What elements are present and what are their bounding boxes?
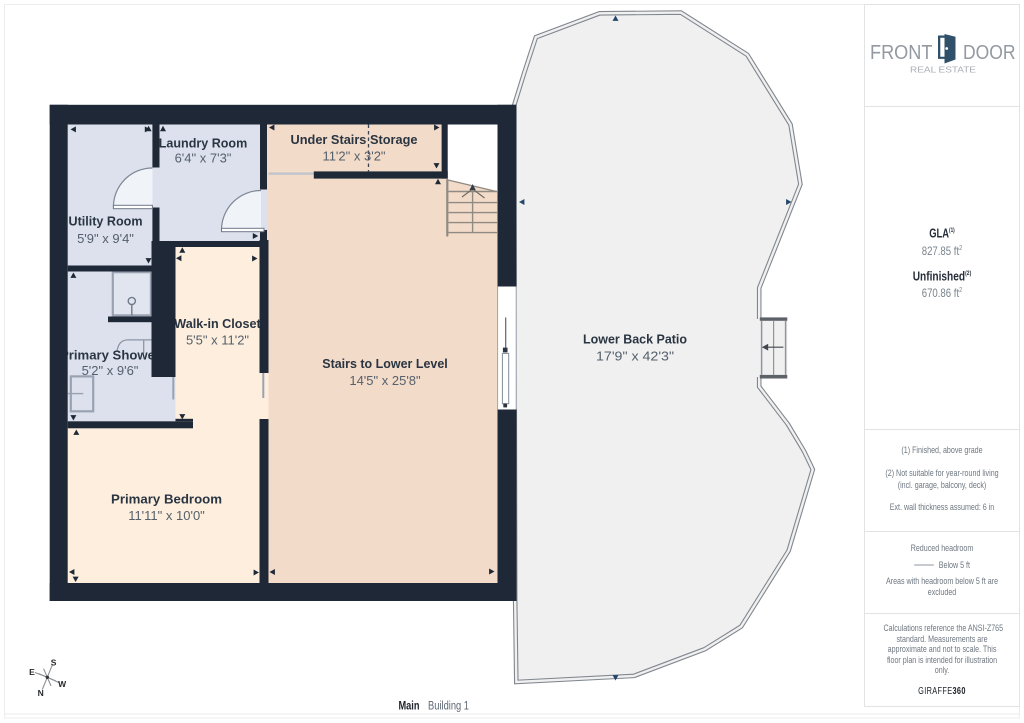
svg-text:Primary Shower: Primary Shower xyxy=(60,348,160,363)
svg-text:Utility Room: Utility Room xyxy=(69,214,143,229)
svg-text:Stairs to Lower Level: Stairs to Lower Level xyxy=(322,356,448,371)
svg-text:DOOR: DOOR xyxy=(963,42,1016,64)
svg-text:REAL ESTATE: REAL ESTATE xyxy=(910,65,976,75)
svg-text:Laundry Room: Laundry Room xyxy=(159,136,248,151)
svg-text:Main: Main xyxy=(399,700,420,712)
svg-text:14'5" x 25'8": 14'5" x 25'8" xyxy=(349,373,421,388)
svg-text:5'2" x 9'6": 5'2" x 9'6" xyxy=(82,363,139,378)
svg-text:W: W xyxy=(58,679,67,689)
svg-text:5'9" x 9'4": 5'9" x 9'4" xyxy=(77,231,134,246)
svg-text:Walk-in Closet: Walk-in Closet xyxy=(174,316,261,331)
svg-text:Lower Back Patio: Lower Back Patio xyxy=(583,332,687,347)
svg-text:17'9" x 42'3": 17'9" x 42'3" xyxy=(596,349,674,364)
svg-text:N: N xyxy=(38,688,44,698)
svg-text:5'5" x 11'2": 5'5" x 11'2" xyxy=(186,333,249,348)
svg-text:Under Stairs Storage: Under Stairs Storage xyxy=(291,132,418,147)
svg-text:11'11" x 10'0": 11'11" x 10'0" xyxy=(128,508,205,523)
svg-text:FRONT: FRONT xyxy=(870,42,933,64)
svg-text:6'4" x 7'3": 6'4" x 7'3" xyxy=(175,151,232,166)
svg-text:Primary Bedroom: Primary Bedroom xyxy=(111,492,222,507)
svg-text:E: E xyxy=(29,667,35,677)
svg-text:S: S xyxy=(51,658,57,668)
svg-text:Building 1: Building 1 xyxy=(428,700,469,712)
svg-text:11'2" x 3'2": 11'2" x 3'2" xyxy=(322,149,385,164)
